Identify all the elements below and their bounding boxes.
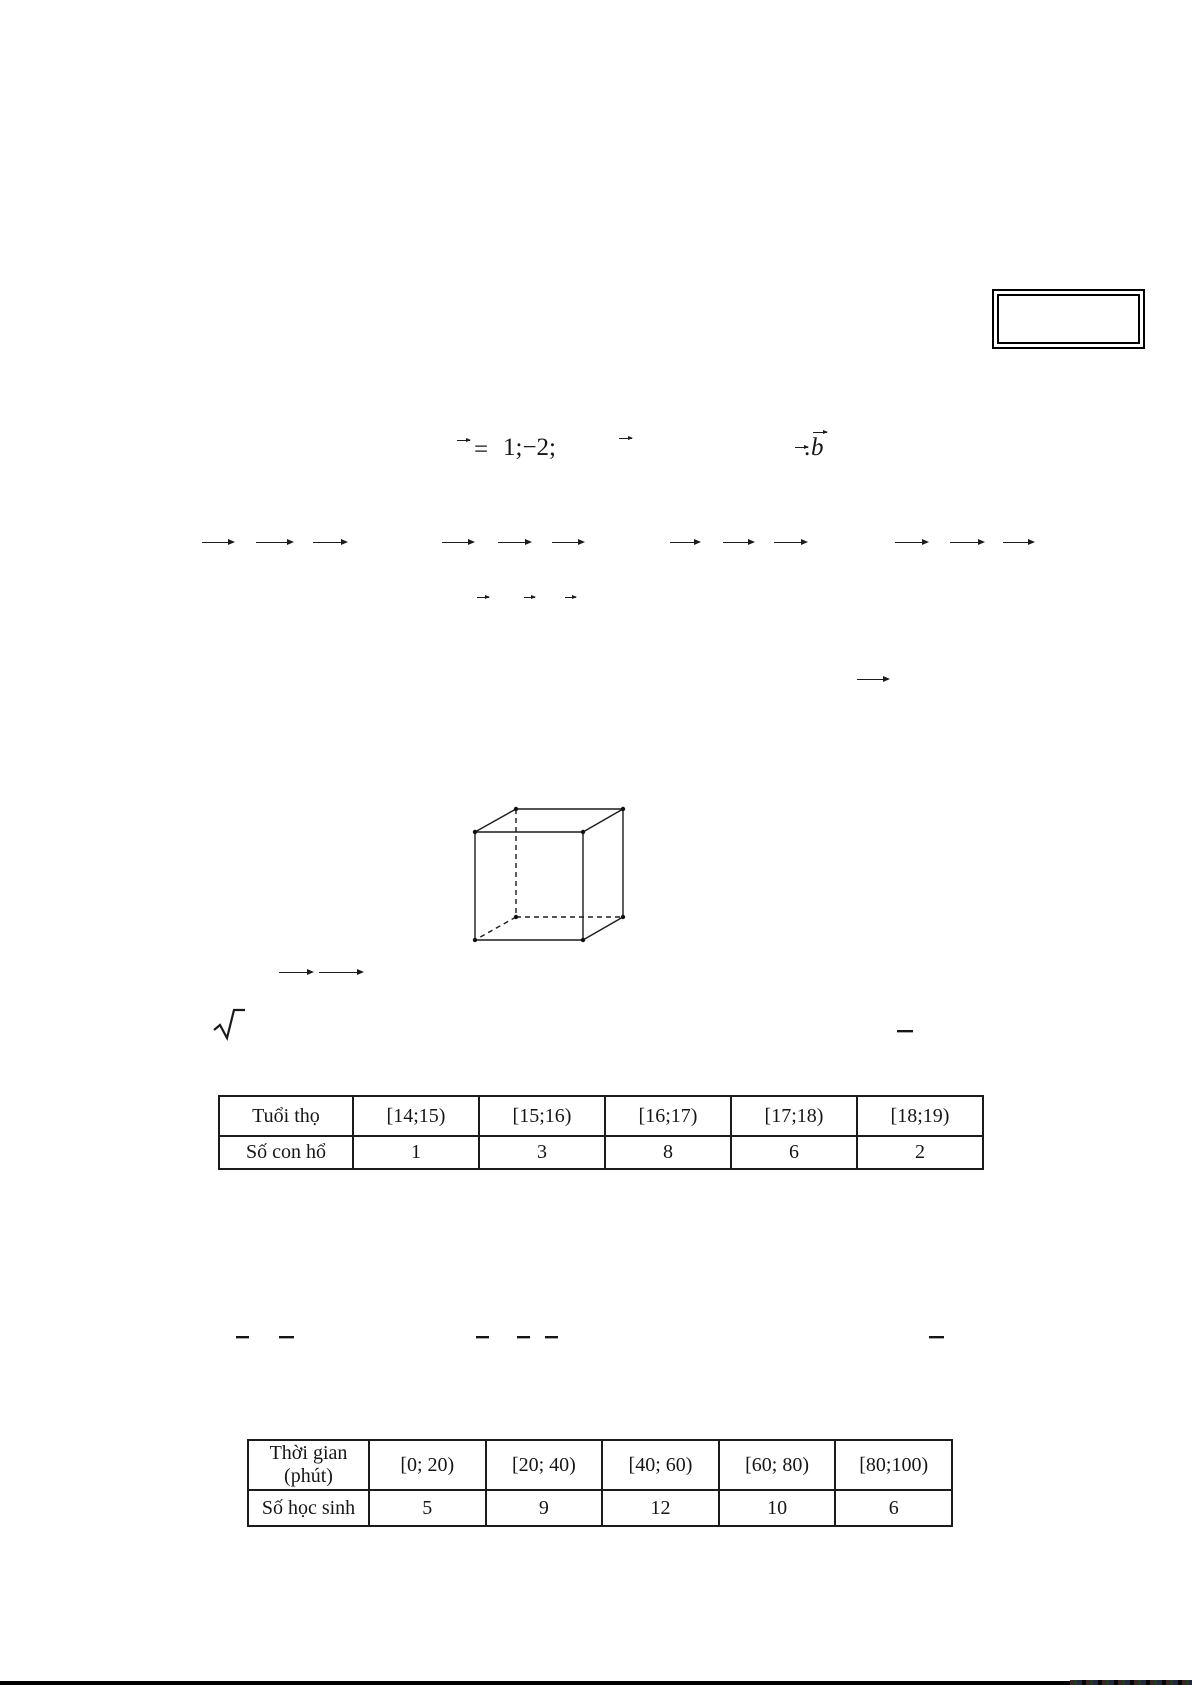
- interval-cell: [20; 40): [486, 1440, 603, 1490]
- interval-cell: [17;18): [731, 1096, 857, 1136]
- fraction-bar: [279, 1336, 294, 1339]
- vector-arrow-icon: [498, 542, 530, 543]
- vector-hat-icon: [457, 440, 470, 441]
- exam-document-page: { "page": { "background": "#ffffff", "in…: [0, 0, 1192, 1685]
- formula-b-vector: b: [811, 435, 824, 460]
- vector-arrow-icon: [950, 542, 983, 543]
- row-header-line2: (phút): [251, 1465, 366, 1488]
- vector-hat-icon: [813, 432, 827, 433]
- count-cell: 10: [719, 1490, 836, 1526]
- vector-arrow-icon: [202, 542, 233, 543]
- interval-cell: [0; 20): [369, 1440, 486, 1490]
- row-header-line1: Thời gian: [251, 1442, 366, 1465]
- formula-coordinates: 1;−2;: [503, 435, 556, 460]
- table-row: Số học sinh 5 9 12 10 6: [248, 1490, 952, 1526]
- interval-cell: [18;19): [857, 1096, 983, 1136]
- count-cell: 8: [605, 1136, 731, 1169]
- formula-equals: =: [474, 437, 488, 462]
- count-cell: 6: [835, 1490, 952, 1526]
- vector-arrow-icon: [857, 679, 888, 680]
- vector-arrow-icon: [313, 542, 346, 543]
- vector-arrow-icon: [1003, 542, 1033, 543]
- table-row: Thời gian (phút) [0; 20) [20; 40) [40; 6…: [248, 1440, 952, 1490]
- fraction-bar: [545, 1336, 558, 1339]
- fraction-bar: [236, 1336, 249, 1339]
- vector-arrow-icon: [319, 972, 362, 973]
- fraction-bar: [517, 1336, 530, 1339]
- row-header: Thời gian (phút): [248, 1440, 369, 1490]
- vector-hat-icon: [565, 597, 576, 598]
- interval-cell: [15;16): [479, 1096, 605, 1136]
- table-row: Tuổi thọ [14;15) [15;16) [16;17) [17;18)…: [219, 1096, 983, 1136]
- interval-cell: [16;17): [605, 1096, 731, 1136]
- vector-arrow-icon: [723, 542, 753, 543]
- page-bottom-crop-bar: [0, 1681, 1192, 1685]
- row-header: Số con hổ: [219, 1136, 353, 1169]
- fraction-bar: [897, 1030, 913, 1033]
- vector-arrow-icon: [895, 542, 927, 543]
- radical-icon: [212, 1006, 248, 1042]
- count-cell: 3: [479, 1136, 605, 1169]
- answer-box-frame: [992, 289, 1145, 349]
- count-cell: 1: [353, 1136, 479, 1169]
- formula-dot: .: [804, 435, 810, 460]
- interval-cell: [40; 60): [602, 1440, 719, 1490]
- count-cell: 12: [602, 1490, 719, 1526]
- count-cell: 2: [857, 1136, 983, 1169]
- fraction-bar: [476, 1336, 489, 1339]
- interval-cell: [60; 80): [719, 1440, 836, 1490]
- lifespan-frequency-table: Tuổi thọ [14;15) [15;16) [16;17) [17;18)…: [218, 1095, 984, 1170]
- answer-box-inner-frame: [997, 294, 1140, 344]
- vector-arrow-icon: [442, 542, 473, 543]
- time-frequency-table: Thời gian (phút) [0; 20) [20; 40) [40; 6…: [247, 1439, 953, 1527]
- vector-arrow-icon: [279, 972, 312, 973]
- table-row: Số con hổ 1 3 8 6 2: [219, 1136, 983, 1169]
- row-header: Tuổi thọ: [219, 1096, 353, 1136]
- vector-arrow-icon: [256, 542, 292, 543]
- interval-cell: [80;100): [835, 1440, 952, 1490]
- cube-figure: [455, 795, 640, 955]
- vector-arrow-icon: [670, 542, 699, 543]
- interval-cell: [14;15): [353, 1096, 479, 1136]
- count-cell: 6: [731, 1136, 857, 1169]
- count-cell: 9: [486, 1490, 603, 1526]
- page-bottom-crop-noise: [1070, 1680, 1192, 1685]
- vector-hat-icon: [477, 597, 489, 598]
- vector-arrow-icon: [552, 542, 583, 543]
- cube-vertex-dots: [473, 807, 625, 942]
- count-cell: 5: [369, 1490, 486, 1526]
- vector-hat-icon: [619, 438, 632, 439]
- fraction-bar: [929, 1336, 944, 1339]
- row-header: Số học sinh: [248, 1490, 369, 1526]
- vector-arrow-icon: [774, 542, 806, 543]
- vector-hat-icon: [524, 597, 535, 598]
